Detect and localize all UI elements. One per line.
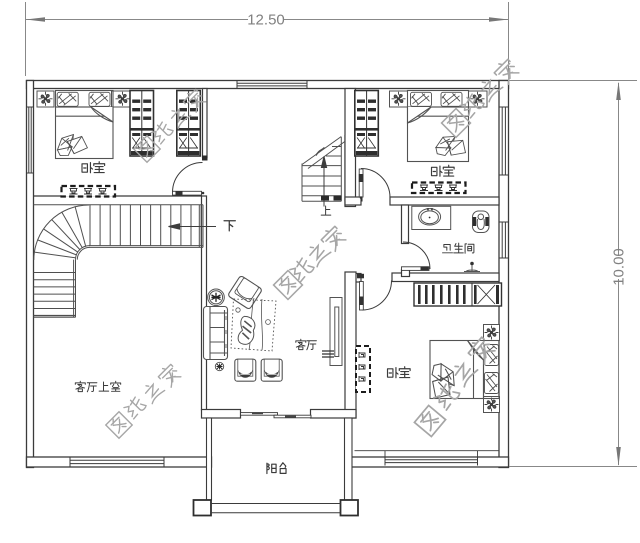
svg-text:12.50: 12.50 [247,12,285,29]
svg-text:10.00: 10.00 [611,248,628,286]
